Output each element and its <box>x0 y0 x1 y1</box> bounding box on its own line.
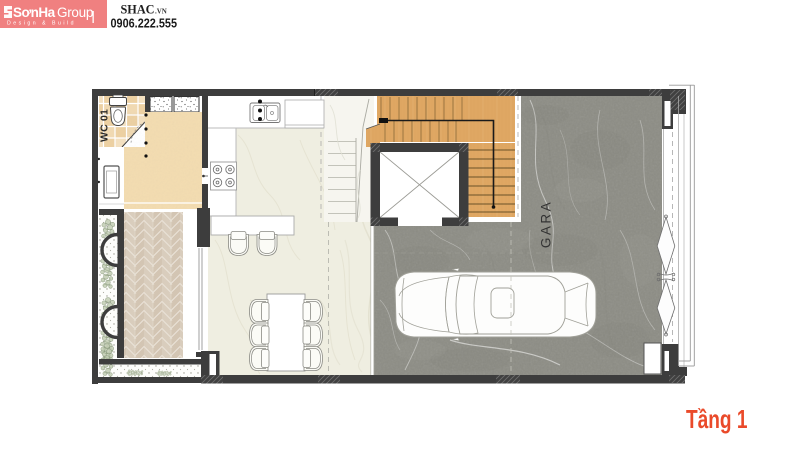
svg-text:Design & Build: Design & Build <box>7 21 76 27</box>
svg-text:.VN: .VN <box>155 7 167 15</box>
svg-text:WC 01: WC 01 <box>99 109 111 142</box>
svg-text:SHAC: SHAC <box>121 2 155 16</box>
svg-text:Group: Group <box>57 5 93 20</box>
svg-text:Tầng 1: Tầng 1 <box>686 404 748 434</box>
svg-text:0906.222.555: 0906.222.555 <box>111 16 178 30</box>
svg-text:GARA: GARA <box>539 200 554 248</box>
svg-text:SơnHa: SơnHa <box>13 5 56 20</box>
